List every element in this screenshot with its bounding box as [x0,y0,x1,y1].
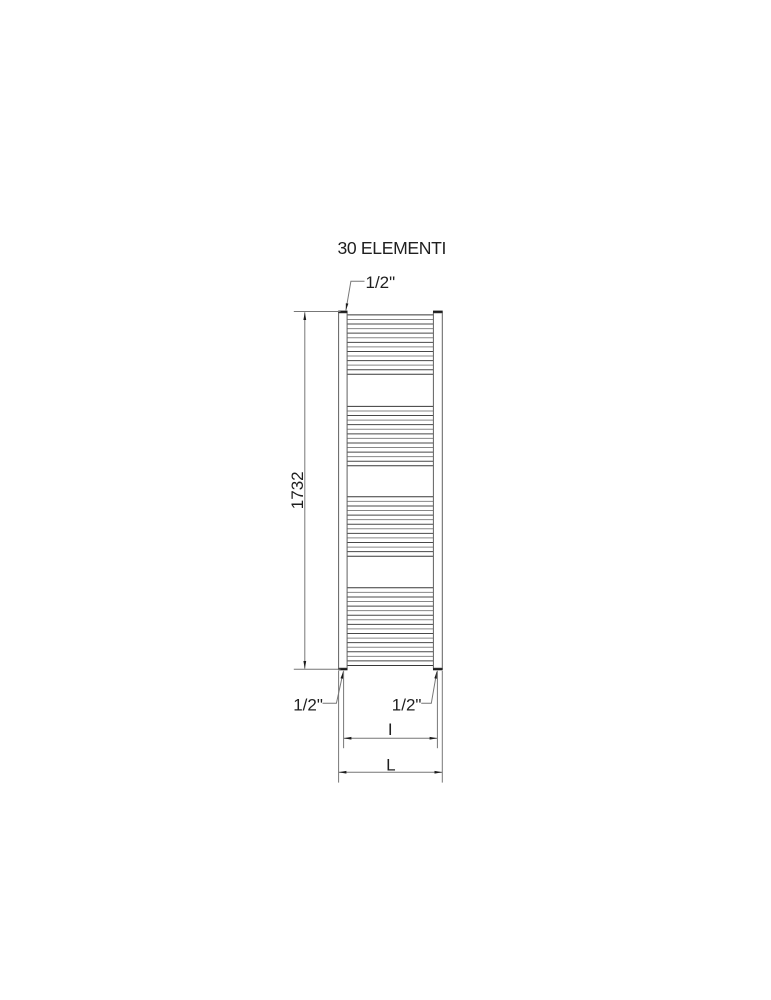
svg-text:1732: 1732 [288,471,307,509]
svg-text:L: L [386,755,395,774]
svg-text:I: I [388,720,393,739]
svg-text:1/2": 1/2" [366,273,396,292]
svg-text:1/2": 1/2" [392,696,422,715]
svg-text:1/2": 1/2" [293,696,323,715]
svg-text:30 ELEMENTI: 30 ELEMENTI [338,238,447,258]
